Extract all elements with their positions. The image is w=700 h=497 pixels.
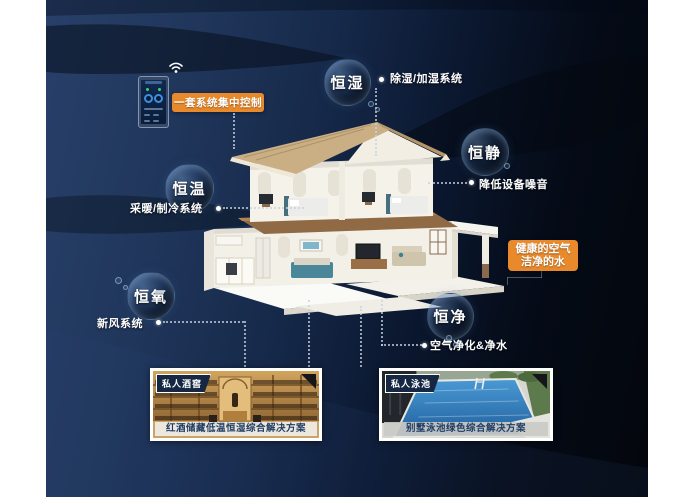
case-tag-pool: 私人泳池 xyxy=(385,374,440,393)
bubble-purity: 恒净 xyxy=(427,293,474,340)
mini-bubble xyxy=(504,163,510,169)
phone-row xyxy=(144,114,150,116)
bubble-humidity: 恒湿 xyxy=(324,59,371,106)
connector-temp-to-house xyxy=(223,207,304,209)
connector-oxygen-h xyxy=(163,321,244,323)
connector-purity-v xyxy=(381,300,383,346)
desc-humidity: 除湿/加湿系统 xyxy=(390,70,463,86)
phone-screen xyxy=(141,80,166,124)
connector-house-to-wine xyxy=(308,300,310,367)
control-knob-right xyxy=(154,94,163,103)
status-dot-right xyxy=(158,88,161,91)
desc-quiet: 降低设备噪音 xyxy=(479,176,548,192)
mini-bubble xyxy=(368,101,374,107)
mini-bubble xyxy=(115,277,122,284)
bubble-oxygen: 恒氧 xyxy=(127,272,175,320)
connector-house-to-quiet xyxy=(428,182,467,184)
phone-row xyxy=(153,120,159,122)
desc-temperature: 采暖/制冷系统 xyxy=(130,200,203,216)
phone-row xyxy=(144,120,150,122)
phone-app-header xyxy=(145,81,162,84)
infographic-stage: 一套系统集中控制 恒湿 除湿/加湿系统 恒静 降低设备噪音 恒温 采暖/制冷系统… xyxy=(46,0,648,497)
phone-row xyxy=(144,108,163,110)
case-tag-wine: 私人酒窖 xyxy=(156,374,211,393)
highlight-line2: 洁净的水 xyxy=(516,256,571,269)
case-caption-wine: 红酒储藏低温恒湿综合解决方案 xyxy=(155,422,317,436)
highlight-box: 健康的空气 洁净的水 xyxy=(508,240,578,271)
status-dot-left xyxy=(146,88,149,91)
bullet-quiet xyxy=(469,180,474,185)
control-phone xyxy=(138,76,169,128)
control-knob-left xyxy=(144,94,153,103)
bubble-quiet: 恒静 xyxy=(461,128,509,176)
desc-oxygen: 新风系统 xyxy=(97,315,143,331)
highlight-line1: 健康的空气 xyxy=(516,243,571,256)
mini-bubble xyxy=(453,342,458,347)
case-card-wine-cellar: 私人酒窖 红酒储藏低温恒湿综合解决方案 xyxy=(150,368,322,441)
house-cutaway-illustration xyxy=(196,112,506,317)
porch xyxy=(452,221,498,278)
case-card-pool: 私人泳池 别墅泳池绿色综合解决方案 xyxy=(379,368,553,441)
bullet-temperature xyxy=(216,206,221,211)
connector-house-to-pool xyxy=(360,306,362,367)
connector-highlight-3 xyxy=(507,277,508,285)
wifi-icon xyxy=(168,60,184,74)
connector-humidity-to-roof xyxy=(375,88,377,156)
mini-bubble xyxy=(123,285,128,290)
mini-bubble xyxy=(375,107,380,112)
connector-purity-h xyxy=(381,344,422,346)
phone-row xyxy=(153,114,159,116)
connector-oxygen-v xyxy=(244,321,246,367)
bullet-oxygen xyxy=(156,320,161,325)
mini-bubble xyxy=(446,335,452,341)
poster-canvas: 一套系统集中控制 恒湿 除湿/加湿系统 恒静 降低设备噪音 恒温 采暖/制冷系统… xyxy=(0,0,700,497)
desc-purity: 空气净化&净水 xyxy=(430,337,507,353)
case-caption-pool: 别墅泳池绿色综合解决方案 xyxy=(384,422,548,436)
connector-highlight-2 xyxy=(507,277,542,278)
connector-control-to-roof xyxy=(233,113,235,149)
bullet-purity xyxy=(422,343,427,348)
bullet-humidity xyxy=(379,77,384,82)
central-control-label: 一套系统集中控制 xyxy=(172,93,264,112)
